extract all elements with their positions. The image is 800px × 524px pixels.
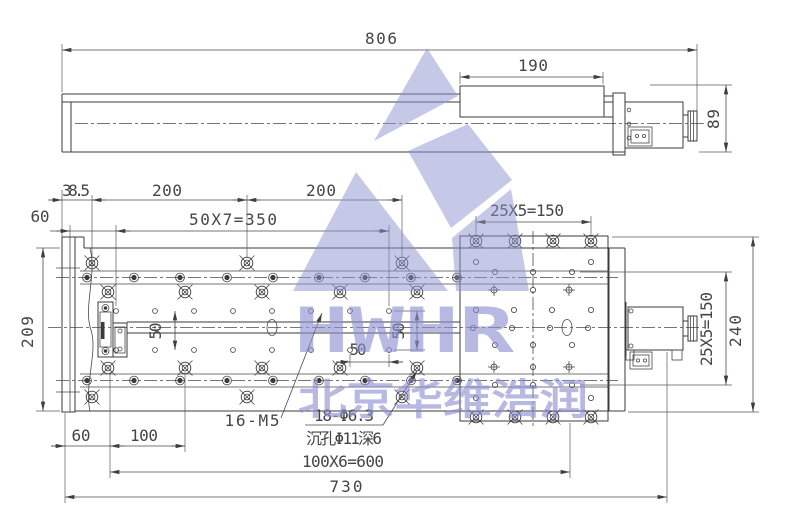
label-16-m5: 16-M5 <box>225 411 280 430</box>
technical-drawing: 806 190 89 38.5 200 200 60 50X7=350 <box>0 0 800 524</box>
top-view-shaft <box>683 115 688 137</box>
dim-89: 89 <box>704 109 723 129</box>
dim-50x7-350: 50X7=350 <box>189 210 277 229</box>
top-view-motor-flange <box>613 93 625 155</box>
plan-left-flange <box>62 237 75 412</box>
watermark-company-name: 北京华维浩润 <box>298 375 588 424</box>
break-line <box>88 248 93 411</box>
top-view-carriage <box>460 86 604 117</box>
dim-806: 806 <box>365 29 397 48</box>
dim-730: 730 <box>330 477 363 496</box>
dim-25x5-right: 25X5=150 <box>697 292 716 366</box>
plan-handwheel <box>688 316 697 341</box>
label-counterbore-note: 沉孔Φ11深6 <box>306 429 382 448</box>
plan-shaft <box>683 321 688 336</box>
dim-190: 190 <box>518 56 548 75</box>
dim-200-b: 200 <box>306 181 336 200</box>
dim-60-top: 60 <box>31 207 50 226</box>
dim-60-bottom: 60 <box>72 426 91 445</box>
top-view-handwheel <box>688 111 697 141</box>
dim-100: 100 <box>130 426 158 445</box>
drawing-canvas: 806 190 89 38.5 200 200 60 50X7=350 <box>0 0 800 524</box>
watermark-logo-text: HWHR <box>294 294 515 367</box>
top-view <box>62 86 706 155</box>
dim-38-5: 38.5 <box>62 181 90 200</box>
dim-200-a: 200 <box>152 181 182 200</box>
plan-motor <box>628 307 683 350</box>
top-view-motor <box>625 102 683 148</box>
dim-50-left: 50 <box>146 323 165 340</box>
dim-240: 240 <box>726 315 745 347</box>
dim-100x6-600: 100X6=600 <box>302 452 384 471</box>
dim-209: 209 <box>18 316 37 348</box>
